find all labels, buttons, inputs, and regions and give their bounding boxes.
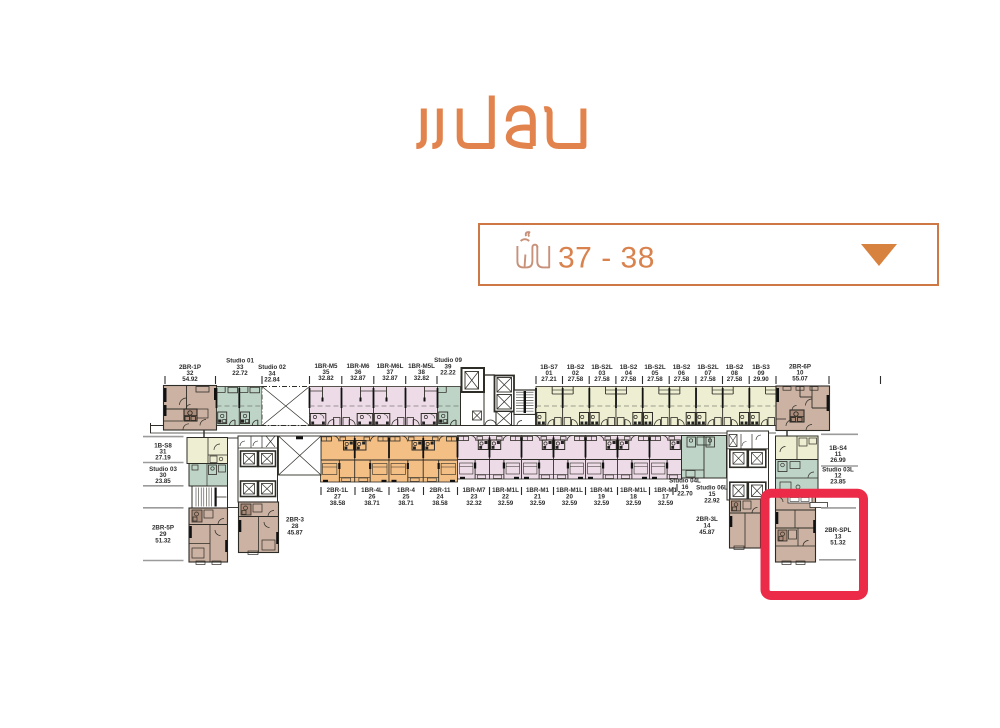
svg-text:1BR-M1L1832.59: 1BR-M1L1832.59 (620, 487, 647, 507)
svg-text:2BR-32845.87: 2BR-32845.87 (286, 517, 304, 537)
svg-text:2BR-1P3254.92: 2BR-1P3254.92 (179, 364, 201, 383)
svg-text:2BR-5P2951.32: 2BR-5P2951.32 (152, 525, 174, 545)
svg-text:1BR-M53532.82: 1BR-M53532.82 (314, 363, 338, 382)
svg-text:2BR-112438.58: 2BR-112438.58 (430, 487, 452, 507)
svg-text:2BR-1L2738.58: 2BR-1L2738.58 (327, 487, 349, 507)
svg-text:1B-S20627.58: 1B-S20627.58 (673, 364, 691, 383)
svg-text:1B-S20227.58: 1B-S20227.58 (567, 364, 585, 383)
svg-text:Studio 093922.22: Studio 093922.22 (434, 357, 462, 377)
svg-text:1BR-M5L3832.82: 1BR-M5L3832.82 (408, 363, 435, 382)
svg-text:1B-S41126.99: 1B-S41126.99 (829, 445, 847, 464)
svg-text:Studio 03L1223.85: Studio 03L1223.85 (822, 467, 854, 486)
svg-text:2BR-3L1445.87: 2BR-3L1445.87 (696, 516, 718, 536)
svg-text:1BR-4L2638.71: 1BR-4L2638.71 (361, 487, 383, 507)
svg-text:1B-S20427.58: 1B-S20427.58 (620, 364, 638, 383)
svg-text:1BR-M11732.59: 1BR-M11732.59 (654, 487, 678, 507)
svg-text:Studio 033023.85: Studio 033023.85 (149, 466, 177, 485)
svg-text:1B-S83127.19: 1B-S83127.19 (154, 443, 172, 462)
svg-text:1BR-M63632.87: 1BR-M63632.87 (346, 363, 370, 382)
svg-text:1B-S2L0727.58: 1B-S2L0727.58 (697, 364, 719, 383)
svg-text:1BR-42538.71: 1BR-42538.71 (397, 487, 415, 507)
svg-text:Studio 013322.72: Studio 013322.72 (226, 358, 254, 378)
svg-text:Studio 06L1522.92: Studio 06L1522.92 (696, 485, 728, 505)
svg-text:1B-S2L0527.58: 1B-S2L0527.58 (644, 364, 666, 383)
svg-text:2BR-SPL1351.32: 2BR-SPL1351.32 (825, 527, 852, 547)
svg-text:1BR-M6L3732.87: 1BR-M6L3732.87 (377, 363, 404, 382)
svg-text:1B-S2L0327.58: 1B-S2L0327.58 (591, 364, 613, 383)
svg-text:1BR-M11932.59: 1BR-M11932.59 (590, 487, 614, 507)
svg-text:1BR-M72332.32: 1BR-M72332.32 (462, 487, 486, 507)
svg-text:1BR-M1L2032.59: 1BR-M1L2032.59 (556, 487, 583, 507)
svg-text:1B-S70127.21: 1B-S70127.21 (540, 364, 558, 383)
svg-text:1BR-M12132.59: 1BR-M12132.59 (526, 487, 550, 507)
svg-text:2BR-6P1055.07: 2BR-6P1055.07 (789, 364, 811, 383)
svg-text:1BR-M1L2232.59: 1BR-M1L2232.59 (492, 487, 519, 507)
svg-text:1B-S20827.58: 1B-S20827.58 (726, 364, 744, 383)
svg-text:1B-S30929.90: 1B-S30929.90 (752, 364, 770, 383)
